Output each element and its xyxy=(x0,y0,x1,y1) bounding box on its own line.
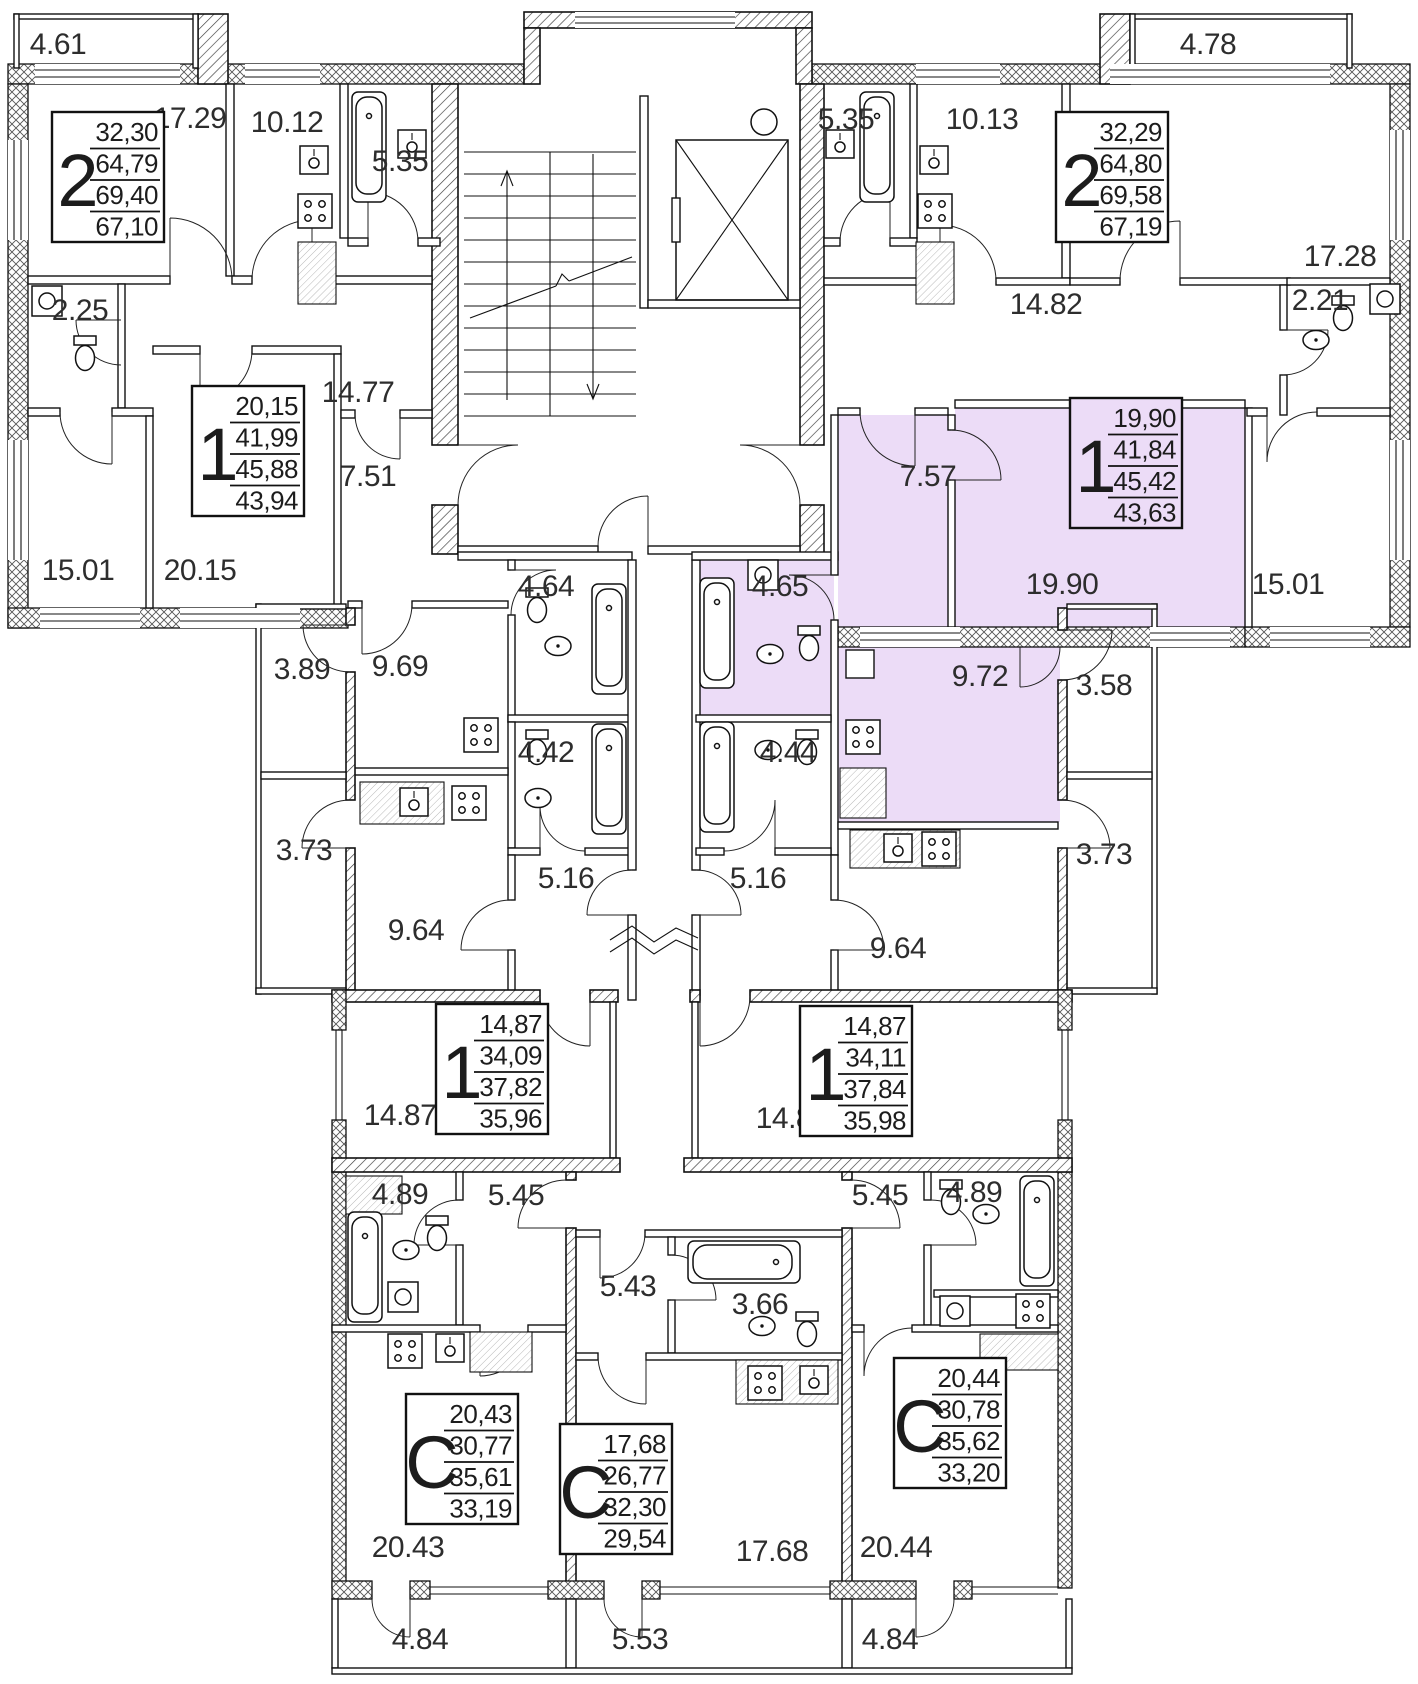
room-area-label-4.78: 4.78 xyxy=(1180,28,1236,61)
room-area-label-20.15: 20.15 xyxy=(164,554,237,587)
stamp-area-value: 64,80 xyxy=(1099,149,1162,179)
room-area-label-20.44: 20.44 xyxy=(860,1531,933,1564)
kitchen-sink-icon xyxy=(436,1334,464,1362)
room-area-label-4.42: 4.42 xyxy=(518,736,574,769)
washing-machine-icon xyxy=(940,1296,970,1326)
bathtub-icon xyxy=(700,578,734,688)
sink-icon xyxy=(1303,331,1329,350)
stamp-area-value: 37,82 xyxy=(479,1072,542,1102)
room-area-label-3.58: 3.58 xyxy=(1076,669,1132,702)
toilet-icon xyxy=(74,336,96,371)
room-area-label-5.45: 5.45 xyxy=(488,1179,544,1212)
stamp-area-value: 30,77 xyxy=(449,1431,512,1461)
washing-machine-icon xyxy=(1370,284,1400,314)
floor-plan-svg: 4.6117.2910.125.352.2514.777.5115.0120.1… xyxy=(0,0,1418,1684)
stove-icon xyxy=(846,720,880,754)
stamp-area-value: 64,79 xyxy=(95,149,158,179)
stamp-area-value: 45,88 xyxy=(235,454,298,484)
kitchen-sink-icon xyxy=(800,1366,828,1394)
apartment-stamp-apt-c-left: C20,4330,7735,6133,19 xyxy=(405,1394,518,1524)
stove-icon xyxy=(1016,1294,1050,1328)
room-area-label-10.13: 10.13 xyxy=(946,103,1019,136)
room-area-label-9.69: 9.69 xyxy=(372,650,428,683)
room-area-label-4.65: 4.65 xyxy=(752,570,808,603)
stamp-area-value: 35,62 xyxy=(937,1426,1000,1456)
entrance-door xyxy=(598,496,648,546)
apartment-stamp-apt-1-left: 120,1541,9945,8843,94 xyxy=(192,386,304,516)
kitchen-counter xyxy=(470,1332,532,1372)
stamp-area-value: 17,68 xyxy=(603,1429,666,1459)
room-area-label-5.16: 5.16 xyxy=(730,862,786,895)
stair-core xyxy=(432,84,824,554)
room-area-label-5.35: 5.35 xyxy=(372,145,428,178)
sink-icon xyxy=(757,645,783,664)
apartment-stamp-apt-1-mid-left: 114,8734,0937,8235,96 xyxy=(436,1004,548,1134)
door-left-lobby xyxy=(458,445,518,505)
stamp-area-value: 45,42 xyxy=(1113,466,1176,496)
room-area-label-14.82: 14.82 xyxy=(1010,288,1083,321)
floor-plan: 4.6117.2910.125.352.2514.777.5115.0120.1… xyxy=(0,0,1418,1684)
room-area-label-4.89: 4.89 xyxy=(372,1178,428,1211)
stairs-up-arrow xyxy=(501,171,513,400)
apartment-stamp-apt-2-right: 232,2964,8069,5867,19 xyxy=(1056,112,1168,242)
stamp-area-value: 69,58 xyxy=(1099,180,1162,210)
apartment-stamp-apt-c-right: C20,4430,7835,6233,20 xyxy=(893,1358,1006,1488)
stamp-area-value: 37,84 xyxy=(843,1074,906,1104)
stove-icon xyxy=(464,718,498,752)
stamp-area-value: 35,61 xyxy=(449,1462,512,1492)
stamp-area-value: 67,19 xyxy=(1099,212,1162,242)
room-area-label-9.72: 9.72 xyxy=(952,660,1008,693)
kitchen-counter xyxy=(916,242,954,304)
bathtub-icon xyxy=(592,584,626,694)
stove-icon xyxy=(388,1334,422,1368)
room-area-label-2.21: 2.21 xyxy=(1292,284,1348,317)
stove-icon xyxy=(452,786,486,820)
room-area-label-14.77: 14.77 xyxy=(322,376,395,409)
room-area-label-17.68: 17.68 xyxy=(736,1535,809,1568)
apartment-stamp-apt-1-right: 119,9041,8445,4243,63 xyxy=(1070,398,1182,528)
toilet-icon xyxy=(796,1312,818,1347)
stamp-area-value: 41,99 xyxy=(235,423,298,453)
room-area-label-2.25: 2.25 xyxy=(52,294,108,327)
stamp-area-value: 35,98 xyxy=(843,1106,906,1136)
bathtub-icon xyxy=(688,1241,800,1283)
room-area-label-5.35: 5.35 xyxy=(818,103,874,136)
kitchen-cabinet xyxy=(846,650,874,678)
room-area-label-15.01: 15.01 xyxy=(42,554,115,587)
stamp-area-value: 35,96 xyxy=(479,1104,542,1134)
sink-icon xyxy=(525,789,551,808)
room-area-label-17.28: 17.28 xyxy=(1304,240,1377,273)
kitchen-sink-icon xyxy=(884,834,912,862)
bathtub-icon xyxy=(348,1212,382,1322)
room-area-label-7.51: 7.51 xyxy=(340,460,396,493)
stove-icon xyxy=(918,194,952,228)
room-corridor-7-57 xyxy=(838,415,955,627)
stairs-down-arrow xyxy=(587,154,599,399)
stamp-area-value: 32,30 xyxy=(603,1492,666,1522)
stove-icon xyxy=(298,194,332,228)
toilet-icon xyxy=(426,1216,448,1251)
room-area-label-3.73: 3.73 xyxy=(276,834,332,867)
stamp-area-value: 19,90 xyxy=(1113,403,1176,433)
kitchen-sink-icon xyxy=(400,788,428,816)
garbage-chute-icon xyxy=(751,109,777,135)
room-area-label-14.87: 14.87 xyxy=(364,1099,437,1132)
sink-icon xyxy=(393,1241,419,1260)
bathtub-icon xyxy=(592,724,626,834)
stamp-area-value: 43,63 xyxy=(1113,498,1176,528)
stove-icon xyxy=(748,1366,782,1400)
room-area-label-9.64: 9.64 xyxy=(870,932,926,965)
room-area-label-4.84: 4.84 xyxy=(862,1623,918,1656)
stamp-area-value: 69,40 xyxy=(95,180,158,210)
room-area-label-3.73: 3.73 xyxy=(1076,838,1132,871)
break-line xyxy=(610,926,698,954)
apartment-stamp-apt-1-mid-right: 114,8734,1137,8435,98 xyxy=(800,1006,912,1136)
room-area-label-20.43: 20.43 xyxy=(372,1531,445,1564)
stamp-area-value: 14,87 xyxy=(479,1009,542,1039)
room-area-label-4.44: 4.44 xyxy=(760,736,816,769)
sink-icon xyxy=(545,637,571,656)
room-area-label-4.89: 4.89 xyxy=(946,1176,1002,1209)
room-area-label-15.01: 15.01 xyxy=(1252,568,1325,601)
stamp-area-value: 30,78 xyxy=(937,1395,1000,1425)
door-right-lobby xyxy=(740,445,800,505)
room-area-label-5.53: 5.53 xyxy=(612,1623,668,1656)
stamp-area-value: 29,54 xyxy=(603,1524,666,1554)
kitchen-counter xyxy=(298,242,336,304)
bathtub-icon xyxy=(700,722,734,832)
washing-machine-icon xyxy=(388,1282,418,1312)
room-area-label-4.84: 4.84 xyxy=(392,1623,448,1656)
stamp-area-value: 33,19 xyxy=(449,1494,512,1524)
kitchen-sink-icon xyxy=(920,146,948,174)
stamp-area-value: 43,94 xyxy=(235,486,298,516)
fixtures xyxy=(32,92,1400,1404)
kitchen-counter xyxy=(840,768,886,818)
room-area-label-9.64: 9.64 xyxy=(388,914,444,947)
room-area-label-10.12: 10.12 xyxy=(251,106,324,139)
bathtub-icon xyxy=(1020,1176,1054,1286)
toilet-icon xyxy=(798,626,820,661)
room-area-label-7.57: 7.57 xyxy=(900,460,956,493)
stamp-area-value: 20,43 xyxy=(449,1399,512,1429)
stove-icon xyxy=(922,832,956,866)
stamp-area-value: 34,09 xyxy=(479,1041,542,1071)
stamp-area-value: 41,84 xyxy=(1113,435,1176,465)
stamp-area-value: 20,44 xyxy=(937,1363,1000,1393)
stamp-area-value: 14,87 xyxy=(843,1011,906,1041)
stamp-area-value: 32,29 xyxy=(1099,117,1162,147)
room-area-label-5.45: 5.45 xyxy=(852,1179,908,1212)
room-area-label-4.61: 4.61 xyxy=(30,28,86,61)
kitchen-sink-icon xyxy=(300,146,328,174)
stamp-area-value: 34,11 xyxy=(845,1043,906,1073)
stamp-area-value: 67,10 xyxy=(95,212,158,242)
apartment-stamp-apt-c-mid: C17,6826,7732,3029,54 xyxy=(559,1424,672,1554)
stamp-area-value: 20,15 xyxy=(235,391,298,421)
stamp-area-value: 26,77 xyxy=(603,1461,666,1491)
room-area-label-3.89: 3.89 xyxy=(274,653,330,686)
room-area-label-3.66: 3.66 xyxy=(732,1288,788,1321)
apartment-stamp-apt-2-left: 232,3064,7969,4067,10 xyxy=(52,112,164,242)
room-area-label-19.90: 19.90 xyxy=(1026,568,1099,601)
room-area-label-4.64: 4.64 xyxy=(518,570,574,603)
room-area-label-5.16: 5.16 xyxy=(538,862,594,895)
stamp-area-value: 32,30 xyxy=(95,117,158,147)
room-area-label-5.43: 5.43 xyxy=(600,1270,656,1303)
stamp-area-value: 33,20 xyxy=(937,1458,1000,1488)
